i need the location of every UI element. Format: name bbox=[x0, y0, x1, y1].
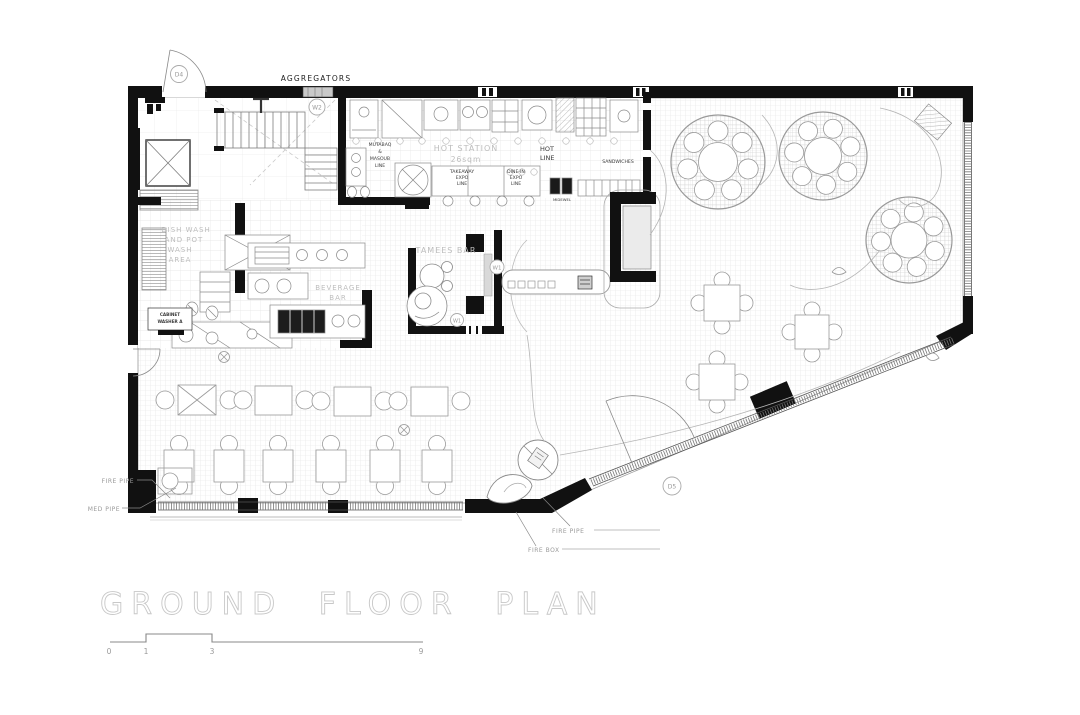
midewel-label: MIDEWEL bbox=[553, 197, 572, 202]
beverage-l2: BAR bbox=[329, 294, 346, 302]
dishwash-l1: DISH WASH bbox=[161, 226, 210, 234]
scale-tick-1: 1 bbox=[144, 647, 149, 656]
mutabaq-2: & bbox=[378, 149, 382, 155]
marker-d4-text: D4 bbox=[175, 72, 184, 79]
marker-w2: W2 bbox=[309, 99, 325, 115]
dishwash-l4: AREA bbox=[169, 256, 192, 264]
dinein-2: EXPO bbox=[510, 175, 523, 181]
floor-plan-drawing: HOT STATION 26sqm HOT LINE TAKEAWAY EXPO… bbox=[0, 0, 1080, 715]
marker-d4: D4 bbox=[171, 66, 188, 83]
marker-d5: D5 bbox=[663, 477, 681, 495]
hot-station-label: HOT STATION bbox=[434, 144, 498, 153]
mutabaq-4: LINE bbox=[375, 163, 385, 169]
mutabaq-1: MUTABAQ bbox=[369, 142, 392, 148]
fire-box-label: FIRE BOX bbox=[528, 547, 560, 554]
scale-bar: 0 1 3 9 bbox=[107, 634, 424, 656]
takeaway-2: EXPO bbox=[456, 175, 469, 181]
marker-w1tamees-text: W1 bbox=[453, 319, 461, 325]
marker-w1-tamees: W1 bbox=[451, 314, 464, 327]
column-symbol-3 bbox=[898, 87, 913, 97]
fire-pipe-bottom-label: FIRE PIPE bbox=[552, 528, 584, 535]
scale-tick-0: 0 bbox=[107, 647, 112, 656]
floor-plan-page: HOT STATION 26sqm HOT LINE TAKEAWAY EXPO… bbox=[0, 0, 1080, 715]
dinein-3: LINE bbox=[511, 181, 521, 187]
booth-1 bbox=[671, 115, 765, 209]
takeaway-1: TAKEAWAY bbox=[449, 169, 474, 175]
booth-2 bbox=[779, 112, 867, 200]
bird-decor-2 bbox=[926, 353, 939, 361]
hot-station-area: 26sqm bbox=[451, 155, 482, 164]
dinein-1: DINE-IN bbox=[507, 169, 525, 175]
cabinet-l1: CABINET bbox=[160, 312, 180, 317]
sandwiches-label: SANDWICHES bbox=[602, 159, 634, 165]
marker-w1bar-text: W1 bbox=[493, 266, 502, 272]
column-symbol-1 bbox=[478, 87, 497, 97]
tamees-bar-label: TAMEES BAR bbox=[415, 246, 477, 255]
scale-tick-3: 9 bbox=[419, 647, 424, 656]
hot-line-1: HOT bbox=[540, 145, 554, 153]
scale-tick-2: 3 bbox=[210, 647, 215, 656]
fire-pipe-left-label: FIRE PIPE bbox=[102, 478, 134, 485]
marker-d5-text: D5 bbox=[668, 484, 677, 491]
beverage-l1: BEVERAGE bbox=[315, 284, 361, 292]
mutabaq-3: MASOUB bbox=[370, 156, 390, 162]
title-block: GROUND FLOOR PLAN 0 1 3 9 bbox=[100, 587, 606, 656]
page-title: GROUND FLOOR PLAN bbox=[100, 587, 606, 622]
marker-w1-bar: W1 bbox=[490, 260, 504, 274]
dishwash-l3: WASH bbox=[167, 246, 192, 254]
dishwash-l2: AND POT bbox=[165, 236, 204, 244]
elevator-shaft-icon bbox=[146, 140, 190, 186]
booth-3 bbox=[866, 197, 952, 283]
med-pipe-label: MED PIPE bbox=[88, 506, 120, 513]
cabinet-l2: WASHER A bbox=[158, 319, 184, 324]
takeaway-3: LINE bbox=[457, 181, 467, 187]
marker-w2-text: W2 bbox=[312, 105, 322, 112]
hot-line-2: LINE bbox=[540, 154, 555, 162]
aggregators-label: AGGREGATORS bbox=[281, 74, 352, 83]
